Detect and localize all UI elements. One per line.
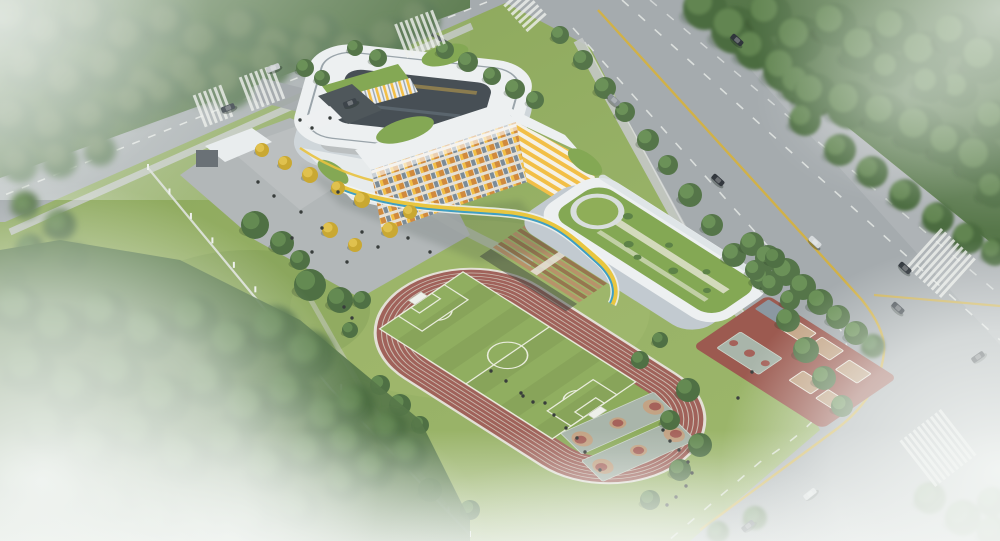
person [428,250,431,253]
west-block [196,150,218,167]
person [489,369,492,372]
person [272,194,275,197]
person [345,260,348,263]
person [256,180,259,183]
fence-post [168,188,170,194]
person [564,426,567,429]
person [376,245,379,248]
person [519,391,522,394]
person [328,116,331,119]
person [310,126,313,129]
scene-canvas [0,0,1000,541]
person [290,236,293,239]
person [310,250,313,253]
person [298,118,301,121]
person [342,305,345,308]
person [531,400,534,403]
person [504,379,507,382]
aerial-campus-rendering [0,0,1000,541]
fence-post [147,164,149,170]
person [360,230,363,233]
person [552,413,555,416]
person [336,190,339,193]
person [521,394,524,397]
person [299,210,302,213]
person [543,401,546,404]
person [406,236,409,239]
person [320,226,323,229]
person [350,316,353,319]
